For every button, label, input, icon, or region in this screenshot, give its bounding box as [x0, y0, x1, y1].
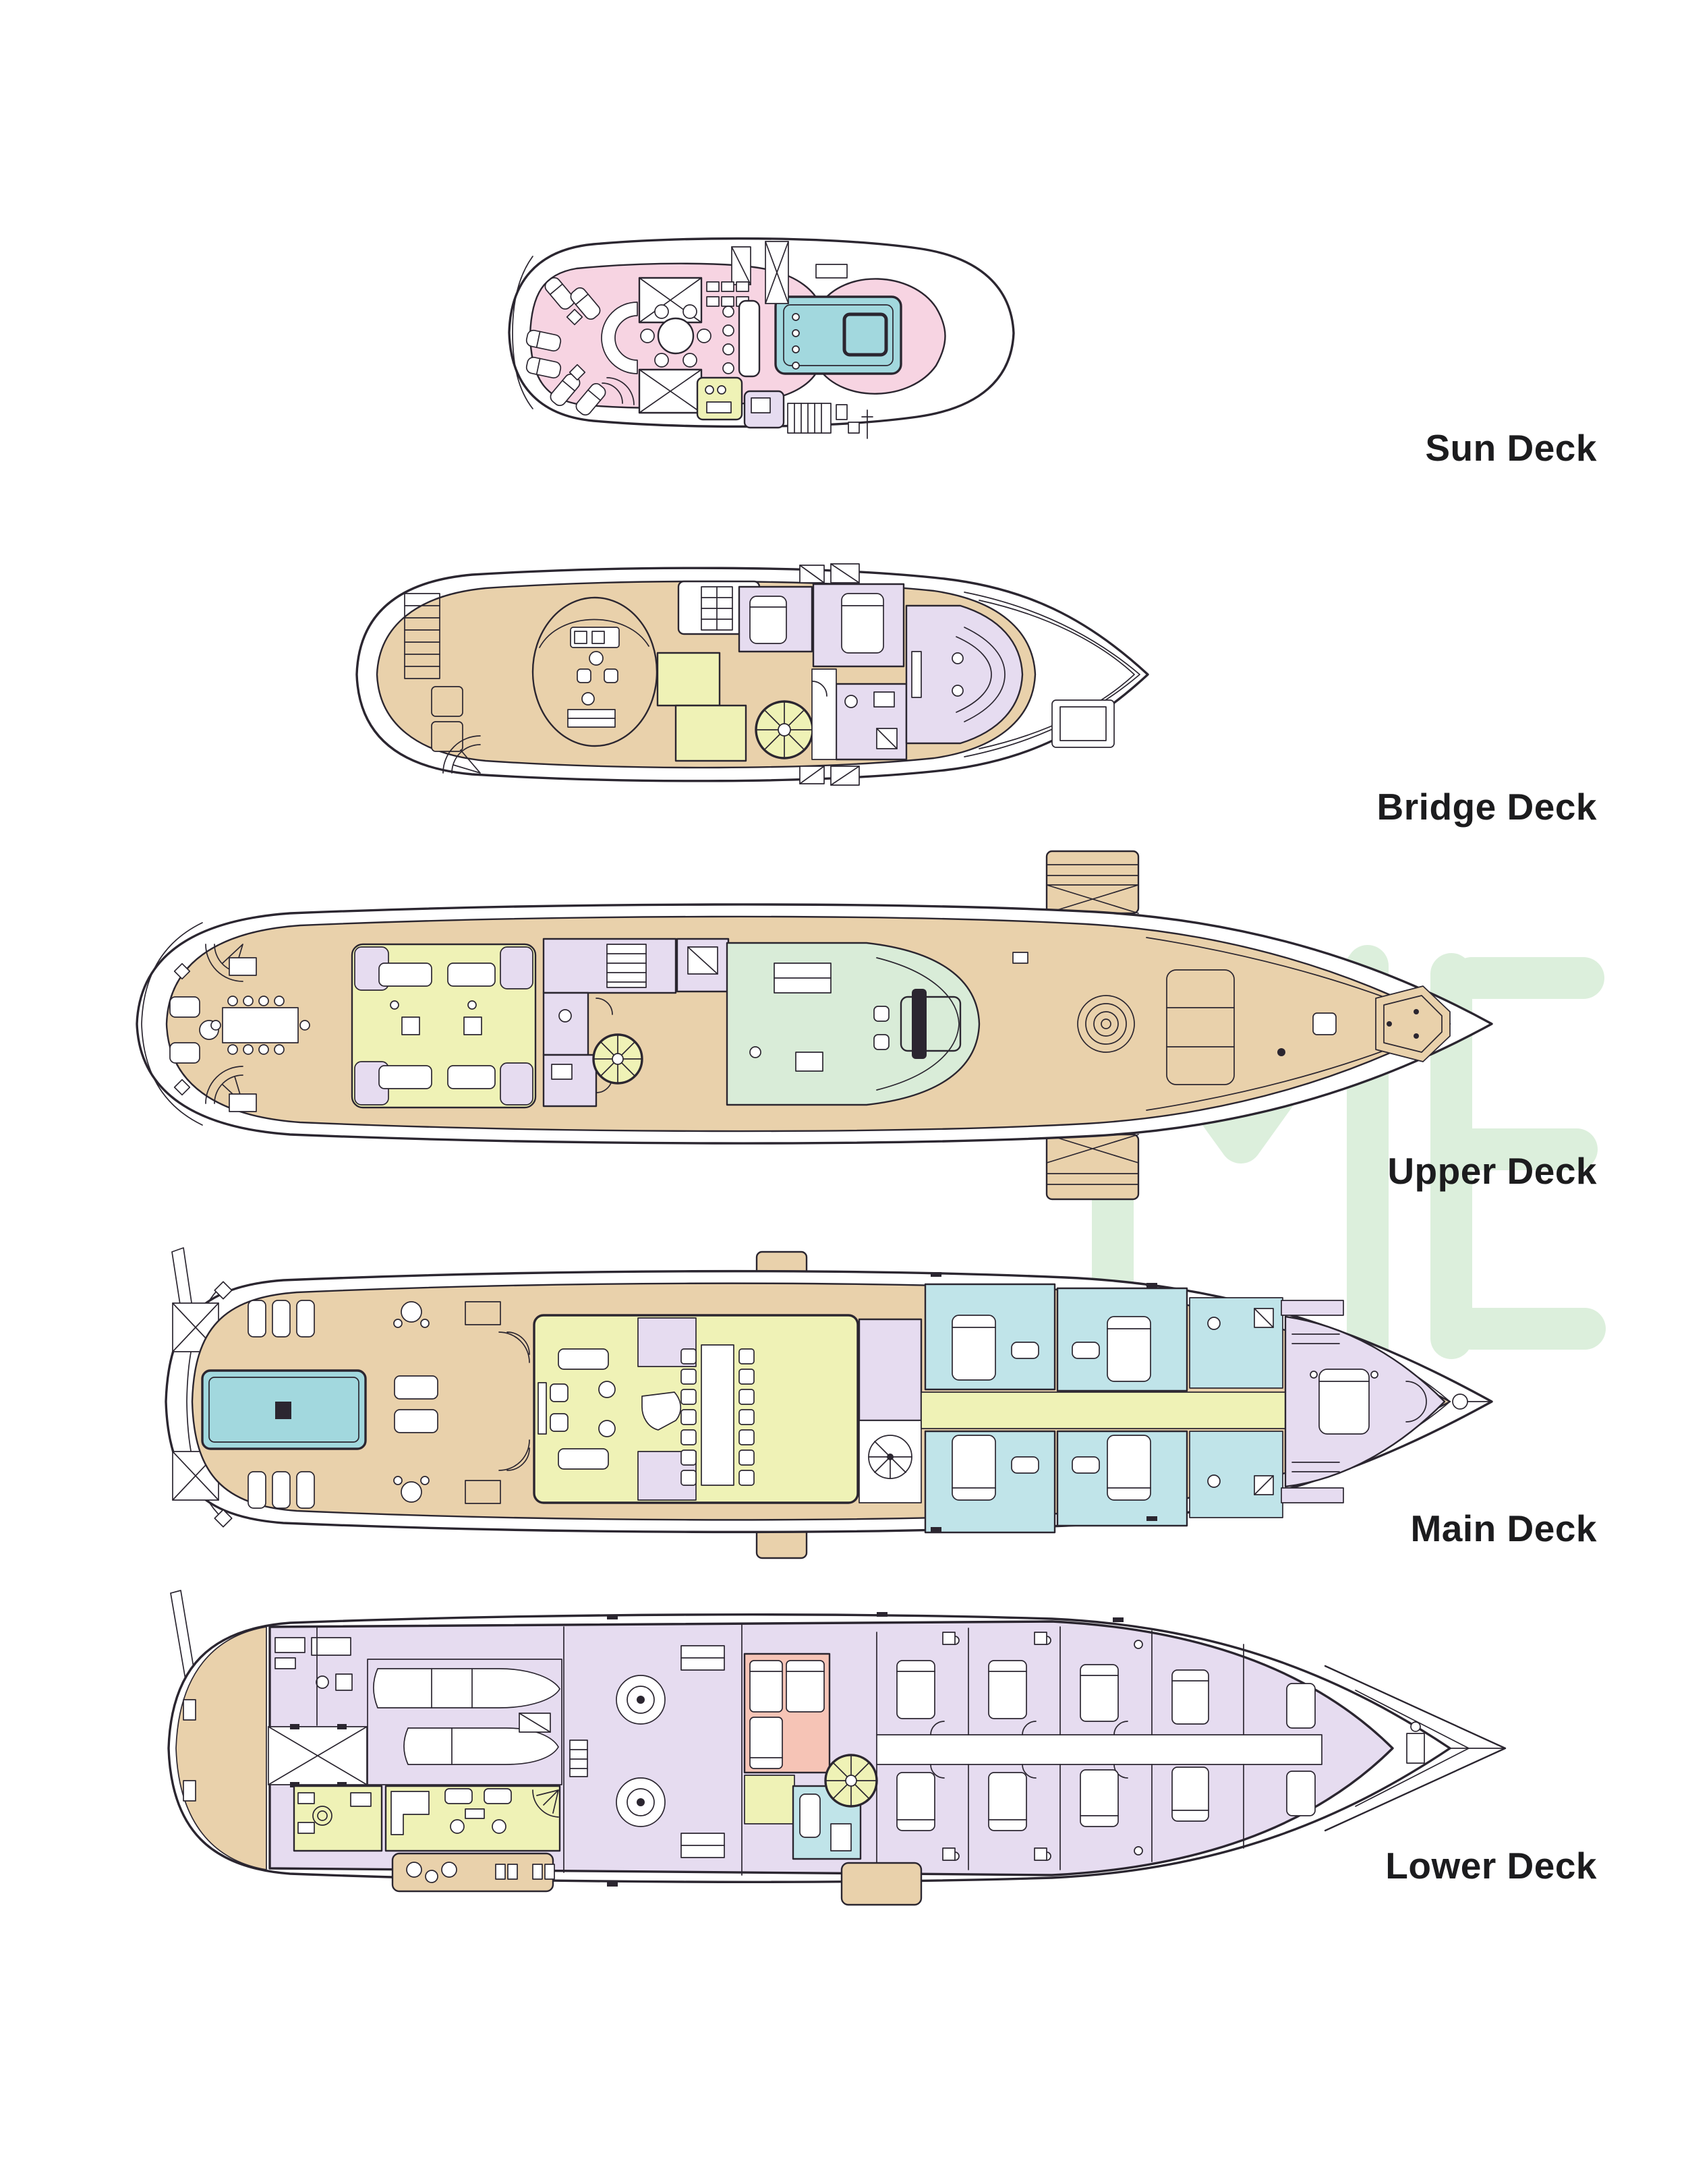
mooring-winch [1078, 996, 1134, 1052]
galley-room [658, 653, 720, 706]
guest-corridor [921, 1392, 1304, 1429]
spiral-staircase [756, 701, 813, 758]
upper-deck-plan [137, 851, 1492, 1199]
crew-mess [386, 1786, 560, 1851]
boarding-platform-top [1047, 851, 1138, 913]
owner-bed [1319, 1369, 1369, 1434]
foyer [859, 1319, 921, 1503]
mid-spiral-staircase [593, 1035, 642, 1083]
lower-deck-plan [169, 1590, 1505, 1905]
swimming-pool [202, 1371, 366, 1449]
foredeck-locker [1313, 1013, 1336, 1035]
crane-hatch [268, 1724, 367, 1787]
sun-deck-plan [509, 239, 1014, 438]
hatched-sunpad-bottom [639, 370, 701, 413]
main-deck-label: Main Deck [1410, 1507, 1597, 1550]
guest-cabin-aft-starboard [1057, 1431, 1187, 1526]
upper-deck-label: Upper Deck [1387, 1149, 1597, 1192]
corridor [812, 669, 836, 759]
foredeck-hatch [1052, 700, 1114, 747]
deck-plan-sheet: Sun Deck Bridge Deck Upper Deck Main Dec… [0, 0, 1686, 2184]
foredeck-sunpad [1167, 970, 1234, 1085]
side-platform-bottom-center [842, 1863, 921, 1905]
lower-spiral-staircase [825, 1755, 877, 1806]
helm-console [912, 989, 927, 1059]
bathroom [836, 684, 906, 759]
bridge-deck-label: Bridge Deck [1377, 785, 1597, 828]
main-salon [534, 1315, 858, 1503]
guest-cabin-forward-port [925, 1284, 1055, 1389]
bridge-deck-plan [357, 564, 1148, 785]
store-box [745, 391, 784, 428]
vip-cabin [813, 584, 904, 666]
lobby-room [676, 706, 746, 761]
aft-seat-box [432, 722, 463, 751]
jacuzzi [776, 297, 901, 374]
deck-console [465, 1481, 500, 1503]
deck-fitting [1277, 1048, 1285, 1056]
deck-console [465, 1302, 500, 1325]
main-deck-plan [166, 1248, 1492, 1558]
laundry [294, 1786, 382, 1851]
helm-wheel-icon [589, 652, 603, 665]
tender-boat [374, 1669, 560, 1708]
boarding-platform-bottom [1047, 1134, 1138, 1199]
crew-lobby [745, 1775, 794, 1824]
lower-deck-label: Lower Deck [1385, 1844, 1597, 1887]
captain-cabin [739, 587, 812, 652]
upper-salon [352, 944, 535, 1108]
wet-bar-box [697, 378, 742, 420]
bridge-room [727, 943, 979, 1105]
deck-box [1013, 952, 1028, 963]
aft-seat-box [432, 687, 463, 716]
guest-cabin-forward-starboard [1057, 1288, 1187, 1391]
tender-boat [404, 1728, 558, 1764]
sun-deck-label: Sun Deck [1425, 426, 1597, 469]
dumbwaiter-room [677, 939, 728, 992]
guest-cabin-aft-port [925, 1431, 1055, 1532]
side-platform-bottom-left [393, 1853, 554, 1891]
crew-cabins [745, 1654, 830, 1773]
